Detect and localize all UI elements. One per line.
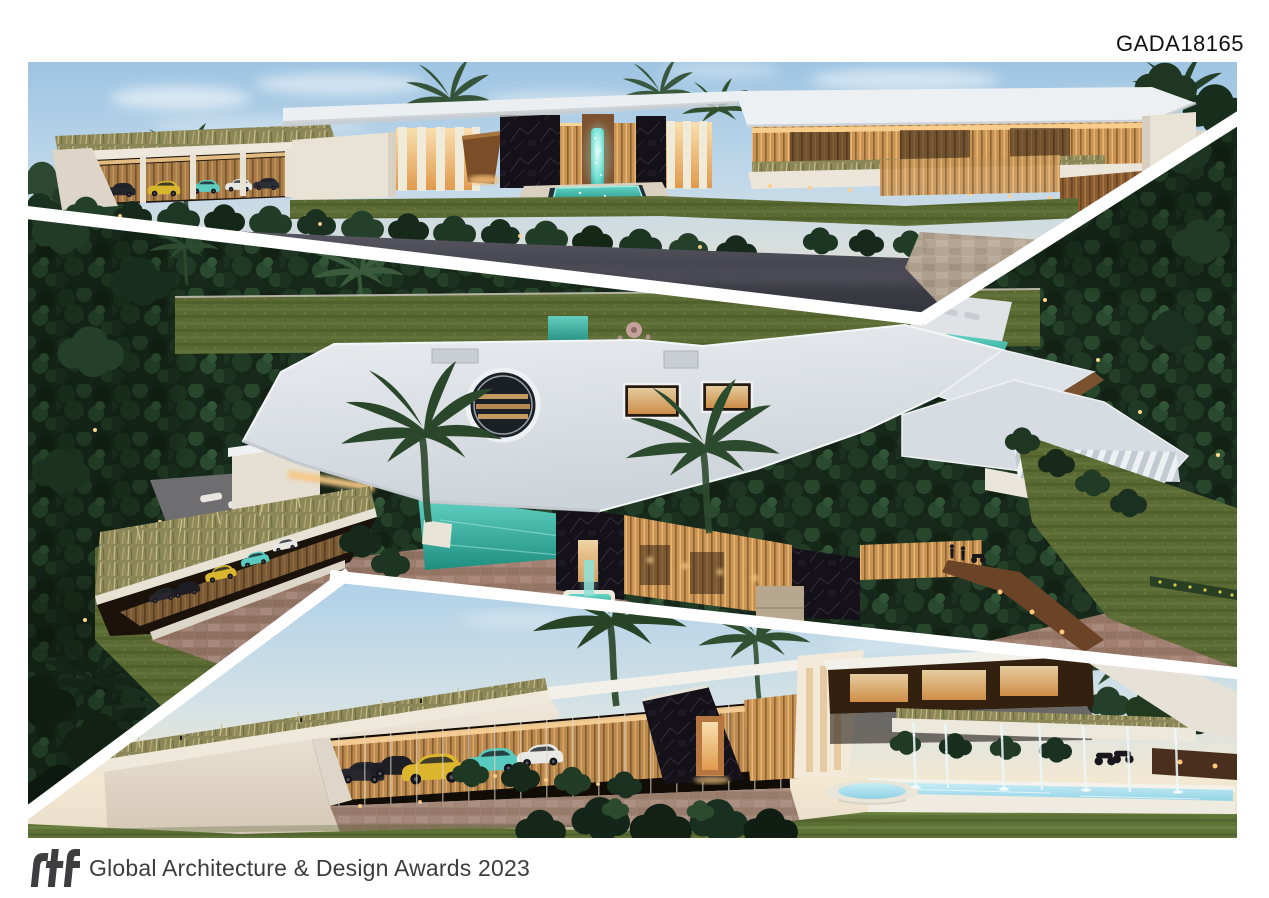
award-title: Global Architecture & Design Awards 2023 bbox=[89, 855, 530, 882]
water-sculpture bbox=[582, 114, 614, 189]
render-collage bbox=[0, 0, 1269, 898]
palm-planter bbox=[422, 520, 452, 548]
rtf-logo bbox=[28, 847, 80, 889]
presentation-board: GADA18165 bbox=[0, 0, 1269, 898]
footer: rtf Global Architecture & Design Awards … bbox=[28, 845, 530, 891]
